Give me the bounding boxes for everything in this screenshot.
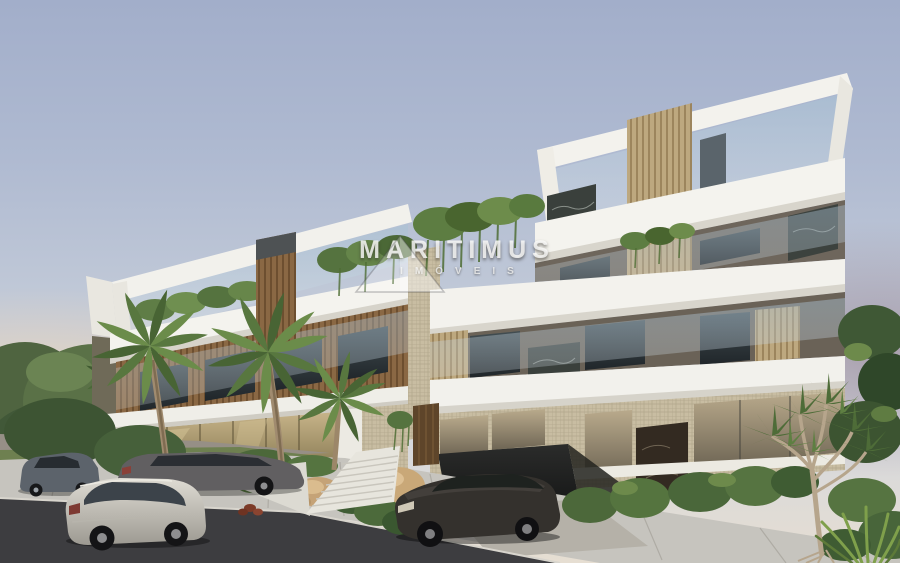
entrance-door[interactable] bbox=[413, 403, 439, 466]
scene-canvas bbox=[0, 0, 900, 563]
architectural-render: MARITIMUS IMÓVEIS bbox=[0, 0, 900, 563]
car-silver-suv[interactable] bbox=[66, 478, 210, 551]
